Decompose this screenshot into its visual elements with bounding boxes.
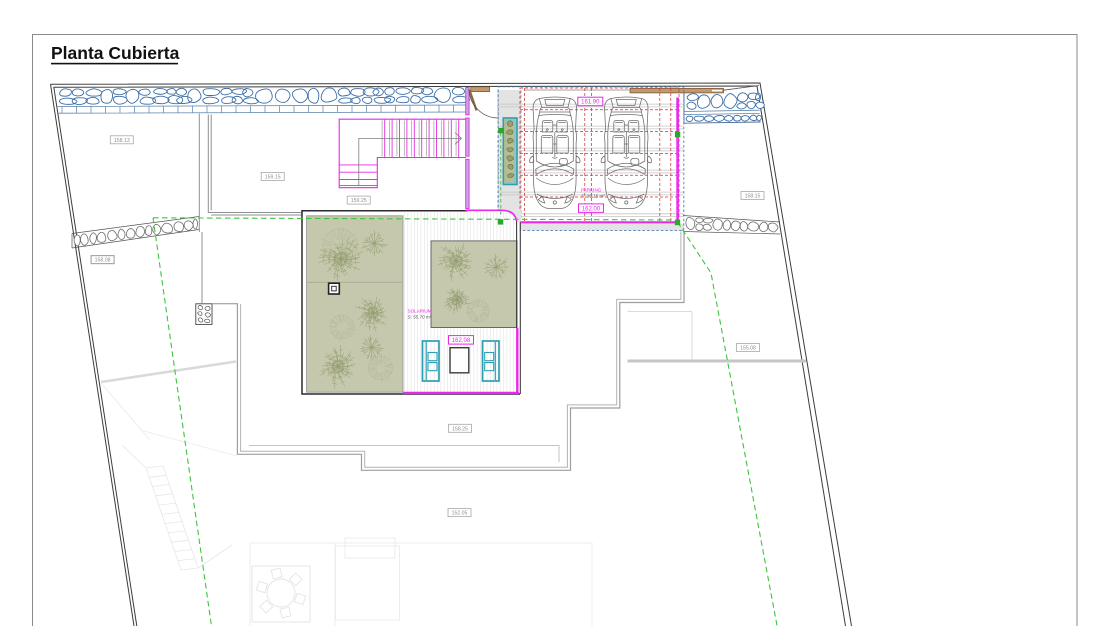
svg-text:162.08: 162.08	[452, 338, 471, 344]
svg-text:158.25: 158.25	[452, 426, 468, 432]
svg-text:PARKING: PARKING	[581, 188, 602, 193]
svg-text:161.90: 161.90	[581, 100, 600, 106]
svg-text:158.08: 158.08	[95, 258, 111, 264]
svg-text:Planta Cubierta: Planta Cubierta	[51, 43, 180, 63]
svg-text:162.00: 162.00	[582, 206, 601, 212]
svg-text:SOLARIUM: SOLARIUM	[408, 309, 432, 314]
svg-text:158.15: 158.15	[745, 194, 761, 200]
svg-text:158.13: 158.13	[114, 138, 130, 144]
svg-text:S: 55.70 m²: S: 55.70 m²	[408, 315, 432, 320]
svg-text:152.05: 152.05	[452, 511, 468, 517]
svg-text:159.25: 159.25	[351, 198, 367, 204]
svg-text:155.08: 155.08	[740, 346, 756, 352]
svg-text:159.15: 159.15	[265, 175, 281, 181]
svg-text:S: 36.15 m²: S: 36.15 m²	[581, 194, 605, 199]
